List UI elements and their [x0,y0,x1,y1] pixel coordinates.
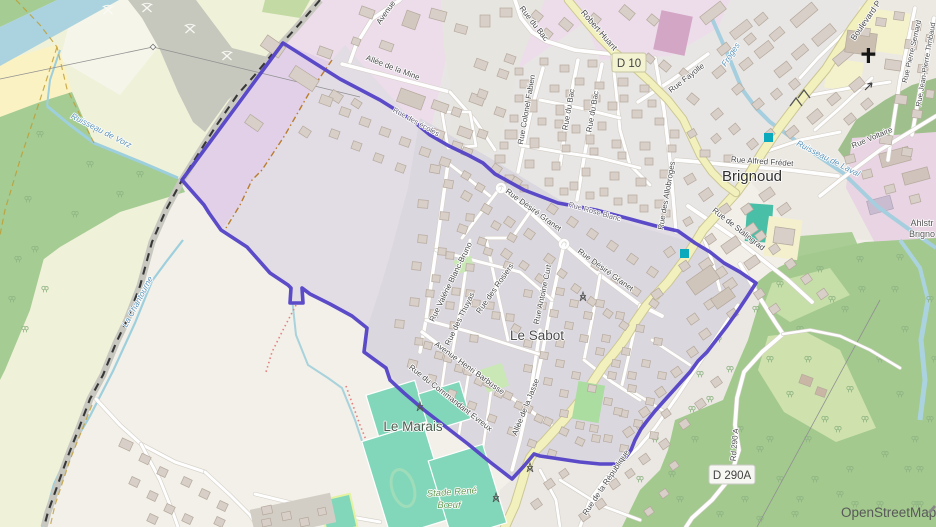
svg-text:D 290A: D 290A [713,470,752,482]
svg-text:Bœuf: Bœuf [437,500,462,511]
svg-text:Le Marais: Le Marais [383,419,443,434]
svg-text:Brignoud: Brignoud [722,168,782,185]
svg-text:OpenStreetMap: OpenStreetMap [841,505,936,520]
svg-text:Le Sabot: Le Sabot [510,328,564,343]
svg-text:Ahlstr: Ahlstr [910,218,933,228]
svg-text:D 10: D 10 [617,58,641,70]
svg-text:Brigno: Brigno [909,229,935,239]
